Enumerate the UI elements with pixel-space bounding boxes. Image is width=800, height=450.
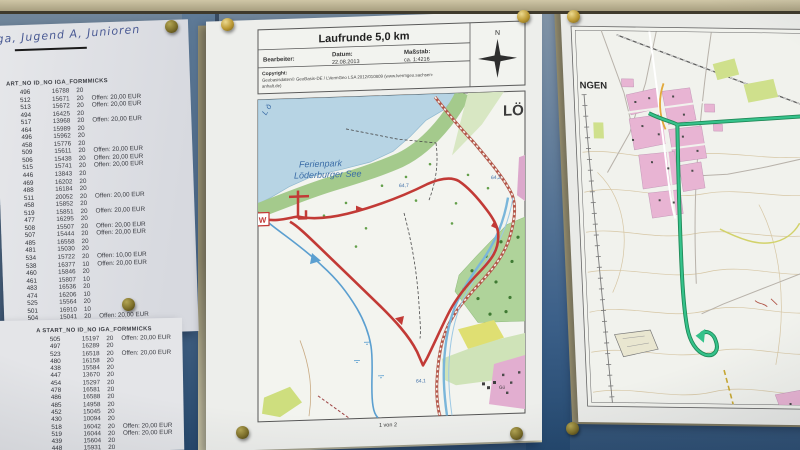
push-pin [566,422,579,435]
divider-line [15,47,87,52]
town-label: NGEN [579,80,607,91]
push-pin [165,20,178,33]
push-pin [510,427,523,440]
start-list-table-top: ART_NO ID_NO IGA_FORMMICKS 4961678820512… [6,75,195,331]
massstab-value: ca. 1:4216 [404,57,430,64]
start-list-table-bottom: A START_NO ID_NO IGA_FORMMICKS 505151972… [36,326,182,450]
buildings-label: Gü [499,385,505,390]
start-list-sheet-top: ga, Jugend A, Junioren ART_NO ID_NO IGA_… [0,19,199,338]
push-pin [567,10,580,23]
compass-n-label: N [495,30,500,37]
datum-value: 22.08.2013 [332,59,360,66]
page-number: 1 von 2 [379,422,397,429]
copyright-line2: anhalt.de) [262,83,282,89]
handwritten-note: ga, Jugend A, Junioren [0,21,167,46]
massstab-label: Maßstab: [404,49,430,56]
table-header: A START_NO ID_NO IGA_FORMMICKS [36,326,180,335]
board-top-rail [0,0,800,14]
notice-board-photo: ga, Jugend A, Junioren ART_NO ID_NO IGA_… [0,0,800,450]
town-label: LÖ [503,102,524,120]
datum-label: Datum: [332,52,353,59]
park-label-line1: Ferienpark [299,158,343,169]
elevation-label: 64,1 [416,378,426,384]
topo-map-svg: NGEN [560,2,800,425]
start-symbol-label: W [259,216,267,225]
table-body: 49616788205121567120Offen: 20,00 EUR5131… [6,83,194,331]
topo-map-sheet: NGEN [560,2,800,425]
table-body: 5051519720Offen: 20,00 EUR49716289205231… [36,334,182,450]
push-pin [221,18,234,31]
push-pin [236,426,249,439]
push-pin [517,10,530,23]
bearbeiter-label: Bearbeiter: [263,57,295,64]
start-list-sheet-bottom: A START_NO ID_NO IGA_FORMMICKS 505151972… [0,318,184,450]
elevation-label: 64,2 [491,175,501,181]
elevation-label: 64,7 [399,183,409,189]
route-map-svg: Laufrunde 5,0 km Bearbeiter: Datum: 22.0… [206,10,542,450]
push-pin [122,298,135,311]
route-map-sheet: Laufrunde 5,0 km Bearbeiter: Datum: 22.0… [206,10,542,450]
